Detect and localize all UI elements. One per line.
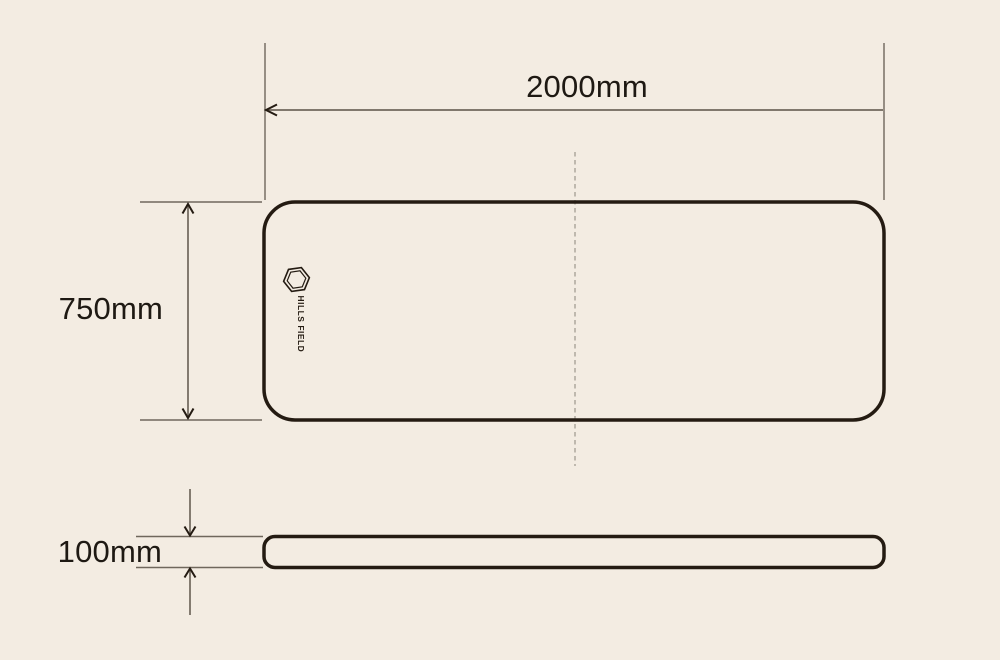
brand-logo: HILLS FIELD (282, 267, 311, 353)
hexagon-inner (286, 270, 307, 289)
drawing-canvas: 2000mm 750mm HILLS FIELD (0, 0, 1000, 660)
brand-logo-text: HILLS FIELD (296, 296, 306, 353)
hexagon-icon (282, 267, 311, 293)
hexagon-outer (282, 267, 311, 293)
height-dimension-label: 100mm (58, 534, 162, 569)
depth-dimension: 750mm (59, 202, 262, 420)
mat-side-view-outline (264, 537, 884, 568)
mat-top-view: HILLS FIELD (264, 152, 884, 466)
technical-drawing: 2000mm 750mm HILLS FIELD (0, 0, 1000, 660)
height-dimension: 100mm (58, 489, 263, 615)
depth-dimension-label: 750mm (59, 291, 163, 326)
mat-side-view (264, 537, 884, 568)
width-dimension-label: 2000mm (526, 69, 648, 104)
mat-top-view-outline (264, 202, 884, 420)
